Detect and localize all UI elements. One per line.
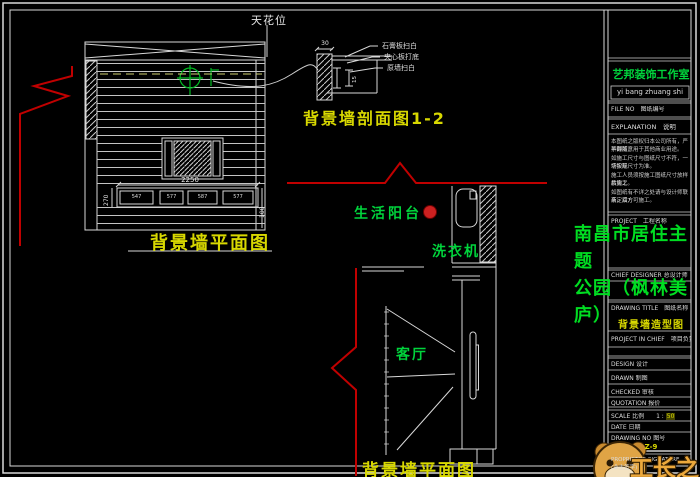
living-room-label: 客厅 [396, 344, 428, 364]
section-drawing [315, 46, 392, 100]
project-name-line1: 南昌市居住主题 [574, 221, 700, 275]
drawing-no-row: DRAWING NO 图号 [611, 435, 691, 443]
dim-right-height: 100 [259, 207, 266, 218]
dim-seg-1: 547 [120, 194, 153, 200]
project-name-line3: 庐） [574, 302, 700, 329]
dim-section-thickness: 30 [316, 40, 334, 47]
section-title: 背景墙剖面图1-2 [303, 105, 446, 129]
dim-seg-4: 577 [223, 194, 253, 200]
scale-label: SCALE 比例 [611, 413, 644, 420]
studio-name-cn: 艺邦装饰工作室 [612, 66, 690, 82]
balcony-label: 生活阳台 [354, 203, 422, 223]
date-row: DATE 日期 [611, 424, 691, 432]
elevation-drawing [85, 42, 272, 251]
dim-seg-2: 577 [160, 194, 183, 200]
dim-total-width: 2250 [160, 176, 220, 184]
dim-left-height: 270 [103, 195, 110, 206]
section-note-gypsum: 石膏板扫白 [382, 41, 417, 51]
dim-section-inner: 15 [352, 76, 358, 83]
balcony-marker-dot [424, 206, 437, 219]
scale-row: SCALE 比例 1 : 50 [611, 413, 691, 421]
explanation-header: EXPLANATION 说明 [611, 123, 691, 131]
watermark-text: 工长之家 [630, 449, 700, 477]
project-name-line2: 公园（枫林美 [574, 275, 700, 302]
file-no-row: FILE NO 图纸编号 [611, 106, 691, 114]
ceiling-label: 天花位 [251, 12, 287, 28]
section-note-original-wall: 原墙扫白 [387, 63, 415, 73]
explanation-line: 后施工。 [611, 180, 689, 188]
washing-machine-label: 洗衣机 [432, 241, 480, 261]
checked-row: CHECKED 审核 [611, 389, 691, 397]
studio-name-en: yi bang zhuang shi [612, 88, 688, 96]
explanation-line: 商定后方可施工。 [611, 197, 689, 205]
dim-seg-3: 587 [188, 194, 217, 200]
plan-drawing [362, 186, 496, 464]
plan-title: 背景墙平面图 [362, 456, 476, 477]
design-row: DESIGN 设计 [611, 361, 691, 369]
explanation-line: 不得随意用于其他商业用途。 [611, 146, 689, 154]
project-name: 南昌市居住主题 公园（枫林美 庐） [574, 221, 700, 329]
scale-value: 1 : [656, 413, 664, 420]
scale-value-highlight: 50 [666, 413, 676, 420]
project-in-chief-row: PROJECT IN CHIEF 项目负责 [611, 336, 691, 344]
section-note-core-board: 夹心板打底 [384, 52, 419, 62]
cad-drawing-canvas: 天花位 背景墙平面图 背景墙剖面图1-2 生活阳台 洗衣机 客厅 背景墙平面图 … [0, 0, 700, 477]
quotation-row: QUOTATION 报价 [611, 400, 691, 408]
explanation-line: 场实际尺寸为准。 [611, 163, 689, 171]
drawn-row: DRAWN 制图 [611, 375, 691, 383]
elevation-title: 背景墙平面图 [150, 229, 270, 255]
